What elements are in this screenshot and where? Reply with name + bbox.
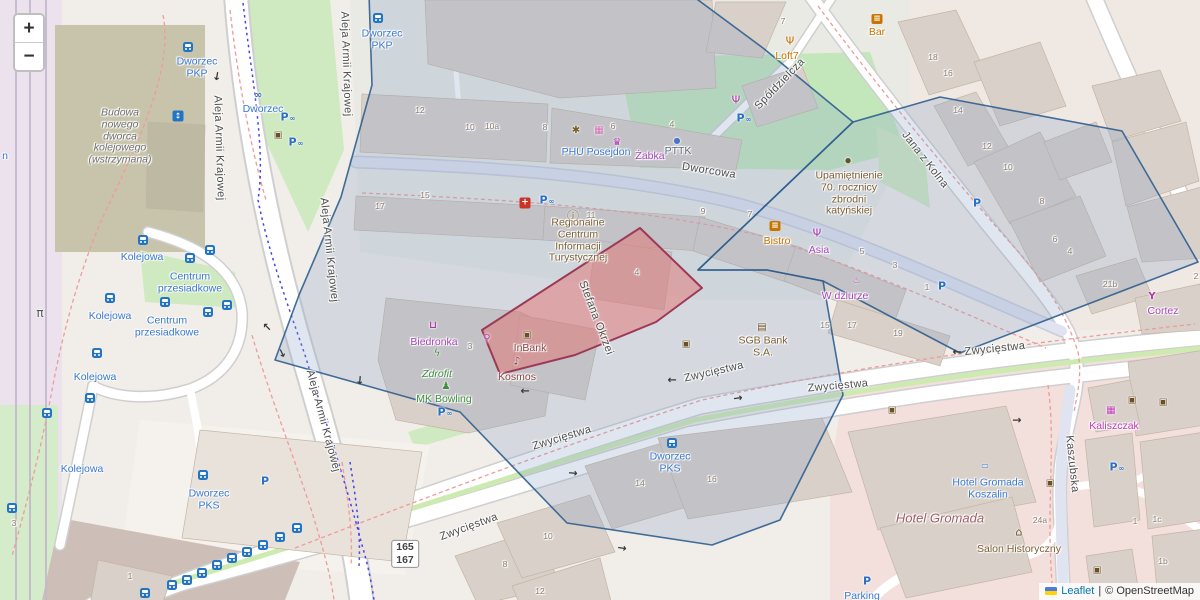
street-dworcowa: Dworcowa — [681, 161, 737, 182]
museum-icon: ⌂ — [1016, 527, 1023, 538]
housenumber-label: 7 — [748, 210, 753, 220]
clothes-shop-icon: ⚲ — [483, 334, 490, 344]
convenience-basket-icon: ♛ — [613, 138, 622, 148]
housenumber-label: 14 — [953, 106, 962, 116]
housenumber-label: 8 — [1040, 197, 1045, 207]
music-venue-icon: ♪ — [513, 356, 520, 367]
parking-icon: P — [973, 198, 981, 209]
pub-icon: ▣ — [1093, 567, 1102, 576]
oneway-arrow-icon: → — [617, 542, 628, 554]
label-dworzec-pks-1: Dworzec PKS — [189, 488, 230, 512]
atm-icon: ▣ — [523, 332, 532, 341]
label-kolejowa-4: Kolejowa — [61, 464, 104, 476]
label-sgb-bank: SGB Bank S.A. — [738, 335, 787, 359]
label-rail-partial: n — [2, 151, 8, 163]
label-kosmos: Kosmos — [498, 372, 536, 384]
art-shop-icon: ✱ — [572, 126, 580, 136]
bus-stop-icon — [105, 293, 115, 303]
parking-icon: P — [261, 476, 269, 487]
restaurant-icon: Ψ — [813, 228, 822, 239]
housenumber-label: 15 — [420, 191, 429, 201]
train-station-icon — [183, 42, 193, 52]
ukraine-flag-icon — [1045, 587, 1057, 595]
street-zwyciestwa-2: Zwycięstwa — [683, 359, 745, 385]
attribution-bar: Leaflet | © OpenStreetMap — [1039, 583, 1200, 600]
housenumber-label: 15 — [820, 321, 829, 331]
pub-icon: ▣ — [682, 341, 691, 350]
housenumber-label: 3 — [893, 261, 898, 271]
label-inbank: InBank — [514, 343, 547, 355]
housenumber-label: 4 — [670, 120, 675, 130]
housenumber-label: 16 — [943, 69, 952, 79]
labels-layer: Aleja Armii KrajowejAleja Armii Krajowej… — [0, 0, 1200, 600]
street-zwyciestwa-4: Zwycięstwa — [964, 340, 1026, 359]
label-zabka: Żabka — [635, 151, 664, 163]
restaurant-icon: Ψ — [732, 95, 741, 106]
housenumber-label: 12 — [535, 587, 544, 597]
bowling-icon: ♟ — [442, 382, 451, 392]
housenumber-label: 4 — [1068, 247, 1073, 257]
label-phu-posejdon: PHU Posejdon — [562, 147, 631, 159]
parking-icon: P — [863, 576, 871, 587]
label-upamietnienie: Upamiętnienie 70. rocznicy zbrodni katyń… — [815, 171, 882, 218]
street-aleja-armii-krajowej-4: Aleja Armii Krajowej — [303, 369, 342, 474]
housenumber-label: 1 — [925, 283, 930, 293]
elevator-icon: ↕ — [173, 111, 184, 122]
bus-stop-icon — [227, 553, 237, 563]
bike-parking-icon: P — [281, 112, 296, 123]
housenumber-label: 17 — [847, 321, 856, 331]
street-stefana-okrzei: Stefana Okrzei — [576, 279, 616, 357]
zoom-in-button[interactable]: + — [15, 15, 43, 43]
housenumber-label: 2 — [1194, 272, 1199, 282]
picnic-table-icon: π — [36, 307, 43, 319]
label-hotel-gromada-koszalin: Hotel Gromada Koszalin — [952, 477, 1023, 501]
housenumber-label: 10 — [543, 532, 552, 542]
openstreetmap-link[interactable]: © OpenStreetMap — [1105, 585, 1194, 597]
shop-icon: ▦ — [594, 126, 603, 136]
zoom-out-button[interactable]: − — [15, 43, 43, 70]
bus-stop-icon — [212, 560, 222, 570]
label-zdrofit: Zdrofit — [422, 369, 452, 381]
leaflet-link[interactable]: Leaflet — [1061, 585, 1094, 597]
bus-stop-icon — [42, 408, 52, 418]
shoe-shop-icon: ▣ — [1159, 399, 1168, 408]
fast-food-icon — [770, 221, 781, 231]
housenumber-label: 7 — [781, 17, 786, 27]
bus-stop-icon — [85, 393, 95, 403]
pttk-node-icon: ● — [674, 137, 681, 145]
street-aleja-armii-krajowej-2: Aleja Armii Krajowej — [338, 11, 354, 117]
housenumber-label: 9 — [701, 207, 706, 217]
housenumber-label: 19 — [893, 329, 902, 339]
monument-icon: ● — [845, 158, 851, 165]
housenumber-label: 3 — [12, 519, 17, 529]
housenumber-label: 6 — [1053, 235, 1058, 245]
label-bistro: Bistro — [764, 236, 791, 248]
parking-icon: P — [938, 281, 946, 292]
bike-parking-icon: P — [1110, 462, 1125, 473]
housenumber-label: 1 — [1133, 517, 1138, 527]
bus-stop-icon — [182, 575, 192, 585]
housenumber-label: 16 — [707, 475, 716, 485]
label-asia: Asia — [809, 245, 829, 257]
housenumber-label: 8 — [543, 123, 548, 133]
housenumber-label: 1 — [128, 572, 133, 582]
bus-stop-icon — [205, 245, 215, 255]
street-zwyciestwa-5: Zwycięstwa — [438, 511, 499, 543]
bus-stop-icon — [275, 532, 285, 542]
label-mk-bowling: MK Bowling — [416, 394, 471, 406]
zoom-control: + − — [13, 13, 45, 72]
oneway-arrow-icon: → — [733, 392, 744, 404]
street-spoldzielcza: Spółdzielcza — [752, 56, 807, 112]
label-salon-historyczny: Salon Historyczny — [977, 544, 1061, 556]
label-centrum-przesiadkowe-1: Centrum przesiadkowe — [158, 271, 222, 295]
pharmacy-icon: + — [520, 198, 531, 209]
housenumber-label: 8 — [503, 560, 508, 570]
housenumber-label: 1c — [1153, 515, 1162, 525]
cafe-icon: ♨ — [853, 276, 862, 286]
bike-parking-icon: P — [737, 113, 752, 124]
route-shield: 165 167 — [391, 540, 419, 568]
bike-parking-icon: P — [438, 407, 453, 418]
housenumber-label: 21b — [1103, 280, 1117, 290]
street-jana-z-kolna: Jana z Kolna — [899, 129, 951, 190]
bus-stop-icon — [197, 568, 207, 578]
label-cortez: Cortez — [1148, 306, 1179, 318]
bank-icon: ▤ — [757, 323, 766, 333]
shop-icon: ▣ — [1128, 397, 1137, 406]
label-bar: Bar — [869, 27, 885, 39]
bus-stop-icon — [140, 588, 150, 598]
bus-stop-icon — [160, 297, 170, 307]
label-w-dziurze: W dziurze — [822, 291, 869, 303]
hotel-icon: ▭ — [981, 462, 989, 470]
oneway-arrow-icon: → — [1012, 415, 1021, 426]
pub-icon: ▣ — [274, 132, 283, 141]
label-kolejowa-1: Kolejowa — [121, 252, 164, 264]
label-budowa: Budowa nowego dworca kolejowego (wstrzym… — [88, 108, 151, 167]
bus-stop-icon — [7, 503, 17, 513]
map-canvas[interactable]: Aleja Armii KrajowejAleja Armii Krajowej… — [0, 0, 1200, 600]
street-aleja-armii-krajowej-1: Aleja Armii Krajowej — [211, 95, 227, 201]
label-parking: Parking — [844, 591, 880, 600]
bus-stop-icon — [167, 580, 177, 590]
housenumber-label: 12 — [982, 142, 991, 152]
train-station-icon — [373, 13, 383, 23]
label-kolejowa-2: Kolejowa — [89, 311, 132, 323]
label-dworzec-pkp-2: Dworzec PKP — [362, 28, 403, 52]
housenumber-label: 10 — [465, 123, 474, 133]
label-kaliszczak: Kaliszczak — [1089, 421, 1139, 433]
housenumber-label: 1b — [1158, 557, 1167, 567]
label-dworzec-pks-2: Dworzec PKS — [650, 451, 691, 475]
label-regionalne-centrum: Regionalne Centrum Informacji Turystyczn… — [549, 218, 608, 265]
bike-parking-icon: P — [540, 195, 555, 206]
pub-icon: ▣ — [1046, 480, 1055, 489]
bus-stop-icon — [222, 300, 232, 310]
pub-icon: ▣ — [888, 407, 897, 416]
street-kaszubska: Kaszubska — [1063, 435, 1081, 493]
housenumber-label: 5 — [860, 247, 865, 257]
bus-stop-icon — [667, 438, 677, 448]
oneway-arrow-icon: → — [667, 375, 676, 386]
oneway-arrow-icon: → — [952, 347, 961, 358]
route-number-165: 165 — [396, 541, 414, 554]
bus-stop-icon — [292, 523, 302, 533]
restaurant-icon: Ψ — [786, 36, 795, 47]
route-number-167: 167 — [396, 554, 414, 567]
housenumber-label: 14 — [635, 479, 644, 489]
bike-parking-icon: P — [289, 137, 304, 148]
bus-stop-icon — [198, 470, 208, 480]
oneway-arrow-icon: → — [275, 346, 289, 359]
bus-stop-icon — [185, 253, 195, 263]
oneway-arrow-icon: → — [520, 386, 529, 397]
attribution-separator: | — [1098, 585, 1101, 597]
oneway-arrow-icon: → — [260, 320, 274, 334]
bus-stop-icon — [258, 540, 268, 550]
information-icon: ⓘ — [567, 210, 579, 222]
pastry-shop-icon: ▦ — [1106, 406, 1115, 416]
bike-rental-icon: ∞ — [254, 91, 262, 101]
housenumber-label: 10a — [485, 122, 499, 132]
housenumber-label: 18 — [928, 53, 937, 63]
label-centrum-przesiadkowe-2: Centrum przesiadkowe — [135, 315, 199, 339]
label-hotel-gromada: Hotel Gromada — [896, 512, 984, 527]
oneway-arrow-icon: → — [211, 71, 223, 82]
bar-icon: Y — [1148, 292, 1155, 302]
housenumber-label: 17 — [375, 202, 384, 212]
oneway-arrow-icon: → — [354, 375, 366, 385]
bus-stop-icon — [138, 235, 148, 245]
housenumber-label: 6 — [611, 122, 616, 132]
housenumber-label: 11 — [587, 211, 596, 221]
fast-food-icon — [872, 14, 883, 24]
bus-stop-icon — [203, 307, 213, 317]
bus-stop-icon — [242, 547, 252, 557]
label-dworzec-bike: Dworzec — [243, 104, 284, 116]
street-zwyciestwa-1: Zwycięstwa — [531, 423, 593, 453]
label-kolejowa-3: Kolejowa — [74, 372, 117, 384]
street-zwyciestwa-3: Zwycięstwa — [807, 377, 869, 395]
housenumber-label: 3 — [468, 342, 473, 352]
oneway-arrow-icon: → — [568, 467, 578, 479]
label-pttk: PTTK — [665, 146, 692, 158]
street-aleja-armii-krajowej-3: Aleja Armii Krajowej — [317, 197, 340, 303]
bus-stop-icon — [92, 348, 102, 358]
housenumber-label: 10 — [1003, 163, 1012, 173]
housenumber-label: 4 — [635, 268, 640, 278]
fitness-icon: ϟ — [434, 349, 441, 359]
label-loft7: Loft7 — [775, 51, 798, 63]
housenumber-label: 24a — [1033, 516, 1047, 526]
housenumber-label: 12 — [415, 106, 424, 116]
supermarket-cart-icon: ⊔ — [429, 321, 437, 331]
